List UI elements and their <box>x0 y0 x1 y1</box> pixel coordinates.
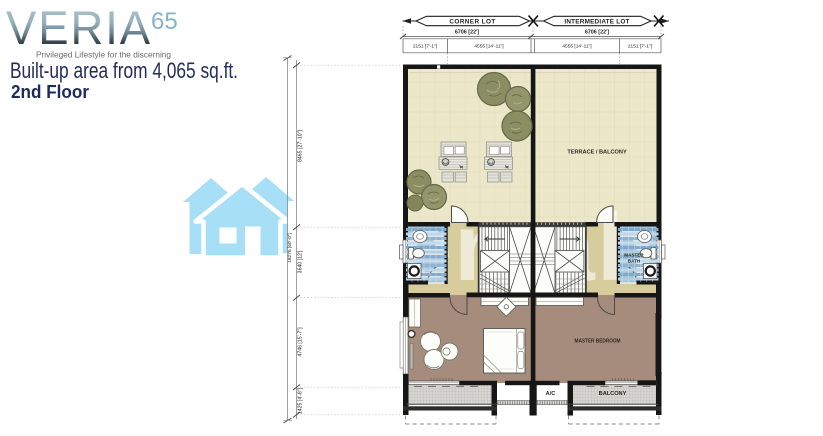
svg-text:6706 [22']: 6706 [22'] <box>455 30 480 36</box>
svg-text:TERRACE / BALCONY: TERRACE / BALCONY <box>567 150 627 156</box>
svg-text:BALCONY: BALCONY <box>599 391 627 397</box>
svg-text:Built-up area from 4,065 sq.ft: Built-up area from 4,065 sq.ft. <box>10 58 238 83</box>
svg-text:4746 [15'-7"]: 4746 [15'-7"] <box>298 327 304 357</box>
svg-text:2151 [7'-1"]: 2151 [7'-1"] <box>413 44 437 50</box>
svg-text:BATH: BATH <box>628 259 641 264</box>
svg-text:A/C: A/C <box>546 391 556 397</box>
svg-text:VERIA: VERIA <box>6 1 152 54</box>
svg-text:18276 [60'-0"]: 18276 [60'-0"] <box>287 233 293 263</box>
svg-text:CORNER LOT: CORNER LOT <box>449 18 495 25</box>
svg-text:6706 [22']: 6706 [22'] <box>585 30 610 36</box>
svg-text:INTERMEDIATE LOT: INTERMEDIATE LOT <box>564 18 629 25</box>
svg-text:8465 [27'-10"]: 8465 [27'-10"] <box>298 129 304 162</box>
svg-text:4555 [14'-11"]: 4555 [14'-11"] <box>562 44 591 50</box>
svg-text:2151 [7'-1"]: 2151 [7'-1"] <box>628 44 652 50</box>
svg-text:MASTER BEDROOM: MASTER BEDROOM <box>575 339 621 345</box>
svg-text:65: 65 <box>151 8 178 35</box>
svg-text:4555 [14'-11"]: 4555 [14'-11"] <box>474 44 503 50</box>
svg-text:1425 [4'-8"]: 1425 [4'-8"] <box>298 387 304 414</box>
svg-text:3640 [12']: 3640 [12'] <box>298 250 304 273</box>
svg-text:2nd Floor: 2nd Floor <box>11 81 89 102</box>
svg-text:MASTER: MASTER <box>624 253 644 258</box>
